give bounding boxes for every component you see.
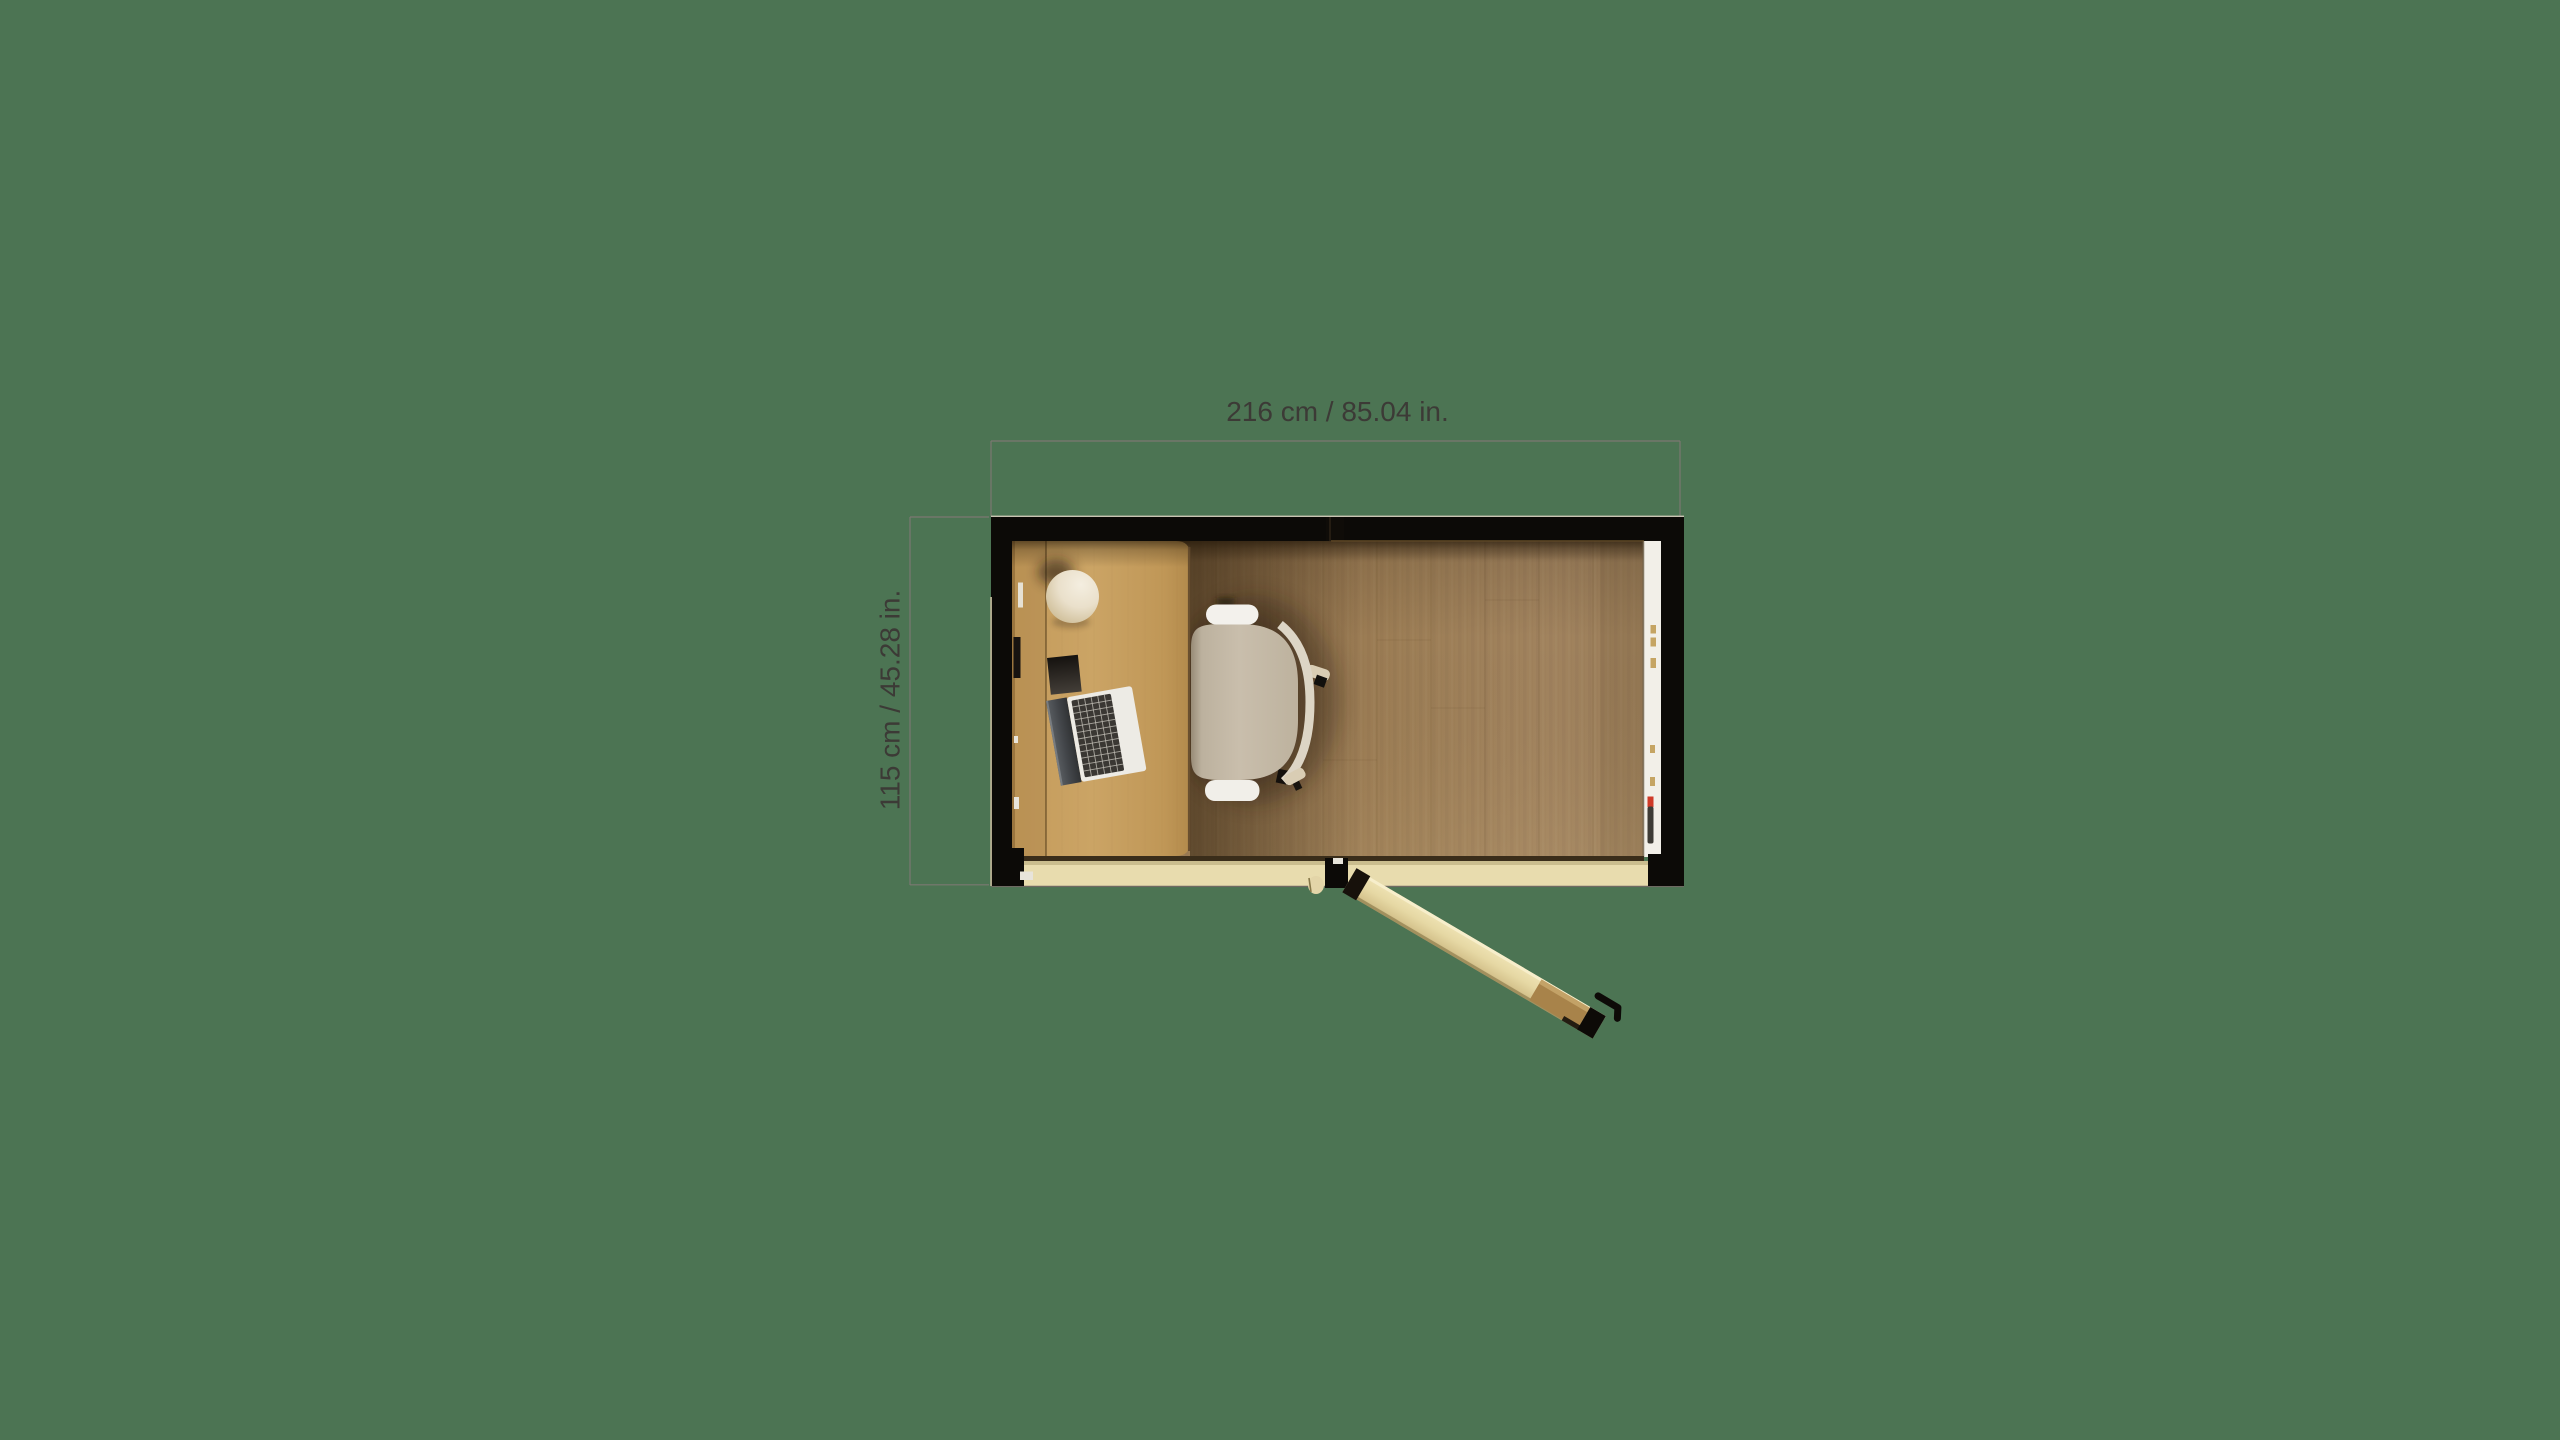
svg-text:115 cm / 45.28 in.: 115 cm / 45.28 in. [875,590,906,811]
svg-text:216 cm / 85.04 in.: 216 cm / 85.04 in. [1226,396,1449,427]
